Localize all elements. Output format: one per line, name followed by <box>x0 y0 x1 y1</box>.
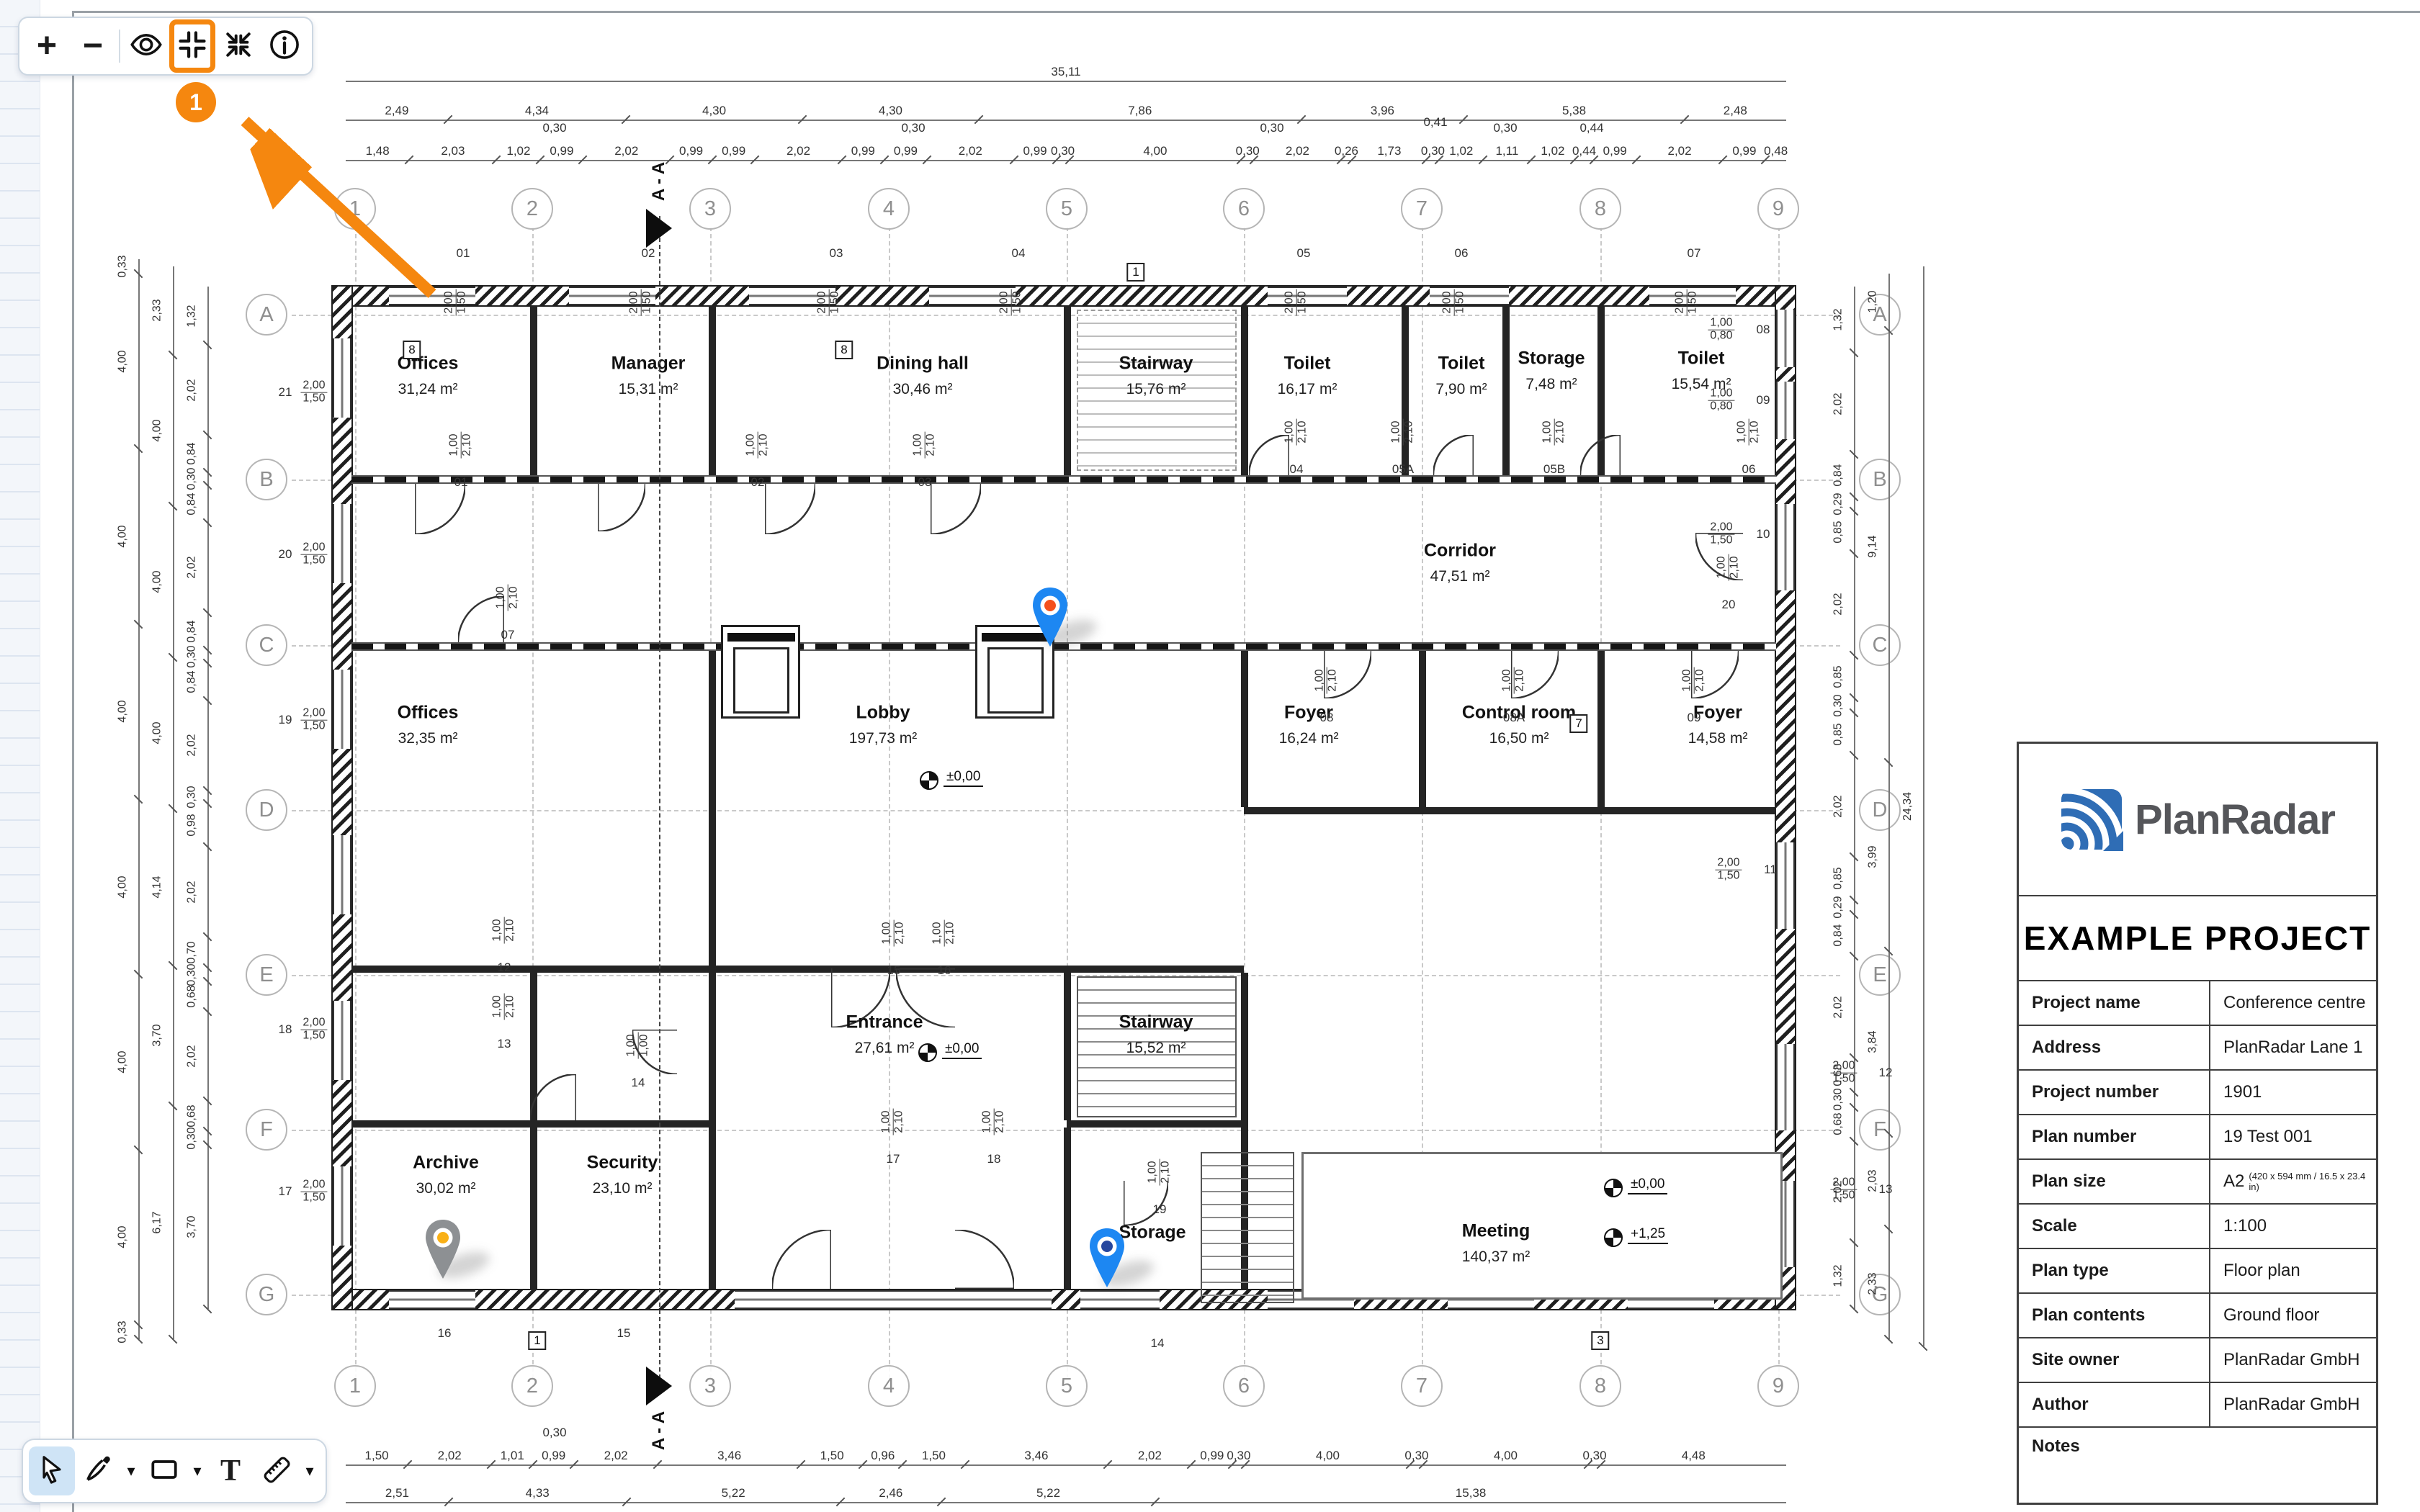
ref-label: 16 <box>438 1326 452 1341</box>
door-dimension: 1,002,10 <box>745 431 771 458</box>
dimension-segment: 4,00 <box>108 974 138 1149</box>
dimension-value: 4,00 <box>151 722 164 744</box>
dimension-segment: 2,02 <box>1824 554 1854 655</box>
annotation-toolbar: ▾▾T▾ <box>22 1439 327 1503</box>
door-arc <box>765 484 815 534</box>
title-block-label: Author <box>2019 1383 2210 1428</box>
room-area-label: 16,24 m² <box>1279 730 1339 747</box>
dimension-value: 4,30 <box>702 104 726 118</box>
door-dimension: 1,002,10 <box>932 919 957 946</box>
dimension-segment: 4,00 <box>108 624 138 799</box>
room-label: Manager <box>611 354 686 374</box>
window-dimension: 1,000,80 <box>1708 388 1734 413</box>
text-icon: T <box>220 1456 241 1486</box>
title-block-label: Site owner <box>2019 1338 2210 1383</box>
dimension-value: 2,02 <box>604 1449 628 1463</box>
door-dimension: 1,002,10 <box>1147 1158 1173 1185</box>
room-area-label: 140,37 m² <box>1462 1248 1531 1266</box>
dimension-value: 35,11 <box>1051 65 1080 79</box>
door-dimension: 1,002,10 <box>913 431 938 458</box>
window-ref-label: 06 <box>1455 246 1469 261</box>
dimension-segment: 1,02 <box>1531 141 1575 160</box>
dimension-segment: 2,02 <box>1636 141 1724 160</box>
detail-ref-box: 1 <box>528 1331 546 1350</box>
grid-bubble-row: G <box>246 1274 287 1315</box>
planradar-logo-text: PlanRadar <box>2135 796 2335 844</box>
window-dimension: 2,001,50 <box>1830 1177 1857 1202</box>
info-icon <box>268 28 301 65</box>
dimension-value: 4,00 <box>117 1050 130 1073</box>
title-block-value: PlanRadar GmbH <box>2210 1383 2376 1428</box>
dimension-segment: 0,68 <box>177 981 207 1012</box>
room-label: Entrance <box>846 1012 923 1033</box>
room-label: Toilet <box>1678 348 1725 369</box>
plan-info-button[interactable] <box>261 20 308 72</box>
wall <box>1402 305 1409 475</box>
window-dimension: 2,001,50 <box>817 289 842 315</box>
dimension-segment: 0,84 <box>177 613 207 650</box>
dimension-segment: 0,84 <box>1824 914 1854 957</box>
dimension-value: 0,84 <box>186 620 199 642</box>
dimension-segment: 4,30 <box>802 101 979 120</box>
dimension-segment: 0,84 <box>177 485 207 523</box>
dimension-segment: 3,84 <box>1858 951 1888 1133</box>
window-dimension: 2,001,50 <box>1675 289 1700 315</box>
room-area-label: 16,17 m² <box>1278 381 1337 398</box>
dimension-value: 0,84 <box>186 442 199 464</box>
room-area-label: 14,58 m² <box>1688 730 1748 747</box>
window-ref-label: 19 <box>279 713 292 727</box>
window-ref-label: 10 <box>1757 527 1770 541</box>
grid-bubble-col: 8 <box>1579 188 1621 230</box>
select-tool-button[interactable] <box>29 1446 75 1495</box>
room-label: Storage <box>1518 348 1585 369</box>
dimension-value: 4,00 <box>1316 1449 1340 1463</box>
dimension-segment: 3,46 <box>965 1446 1108 1464</box>
grid-axis-line <box>889 227 890 1379</box>
dimension-value: 2,02 <box>1832 795 1845 817</box>
door-arc <box>931 484 981 534</box>
dimension-segment: 4,00 <box>1070 141 1242 160</box>
door-arc <box>1433 435 1474 475</box>
room-area-label: 7,90 m² <box>1435 381 1487 398</box>
grid-bubble-col: 5 <box>1046 1365 1088 1407</box>
wall <box>1064 305 1071 475</box>
dimension-value: 3,96 <box>1371 104 1394 118</box>
title-block-value: A2(420 x 594 mm / 16.5 x 23.4 in) <box>2210 1160 2376 1205</box>
window-ref-label: 18 <box>279 1022 292 1037</box>
measure-tool-dropdown-caret[interactable]: ▾ <box>300 1462 320 1480</box>
draw-tool-button[interactable] <box>75 1446 121 1495</box>
dimension-value: 9,14 <box>1867 535 1880 557</box>
draw-tool-dropdown-caret[interactable]: ▾ <box>121 1462 141 1480</box>
wall <box>1241 305 1248 475</box>
dimension-column: 1,322,020,840,290,852,020,850,300,852,02… <box>1824 287 1855 1309</box>
shape-tool-button[interactable] <box>141 1446 187 1495</box>
dimension-segment: 0,26 <box>1341 141 1353 160</box>
dimension-segment: 15,38 <box>1155 1483 1786 1502</box>
dimension-segment: 1,50 <box>902 1446 964 1464</box>
door-dimension: 1,002,10 <box>982 1108 1007 1135</box>
dimension-segment: 2,02 <box>177 523 207 613</box>
window-dimension: 1,000,80 <box>1708 318 1734 343</box>
window-ref-label: 17 <box>279 1184 292 1199</box>
dimension-segment: 4,00 <box>1423 1446 1589 1464</box>
level-marker-value: ±0,00 <box>1628 1176 1667 1194</box>
dimension-value: 4,00 <box>1494 1449 1518 1463</box>
shrink-icon <box>222 28 255 65</box>
dimension-segment: 2,02 <box>1824 755 1854 857</box>
title-block-value: 1901 <box>2210 1071 2376 1115</box>
detail-ref-box: 3 <box>1591 1331 1609 1350</box>
dimension-value: 1,32 <box>1832 308 1845 330</box>
room-area-label: 16,50 m² <box>1489 730 1549 747</box>
dimension-column: 24,34 <box>1893 266 1924 1346</box>
window-dimension: 2,001,50 <box>1708 522 1734 547</box>
dimension-segment: 2,02 <box>1824 353 1854 454</box>
collapse-view-button[interactable] <box>215 20 261 72</box>
step-badge: 1 <box>176 82 216 122</box>
eye-icon <box>130 28 163 65</box>
window-ref-label: 09 <box>1757 393 1770 408</box>
dimension-segment: 4,00 <box>108 1150 138 1325</box>
dimension-segment: 2,51 <box>346 1483 449 1502</box>
level-marker-icon <box>1604 1228 1623 1247</box>
title-block-value: 1:100 <box>2210 1205 2376 1249</box>
dimension-value: 0,99 <box>1023 144 1047 158</box>
door-ref-label: 12 <box>498 960 511 975</box>
zoom-out-icon: − <box>83 29 103 63</box>
dimension-column: 0,334,004,004,004,004,004,000,33 <box>108 259 140 1339</box>
dimension-value: 24,34 <box>1901 792 1914 821</box>
door-ref-label: 16 <box>938 963 951 978</box>
window-dimension: 2,001,50 <box>300 1017 327 1043</box>
dimension-value: 0,84 <box>1832 464 1845 487</box>
dimension-segment: 4,00 <box>108 449 138 624</box>
dimension-value: 0,99 <box>542 1449 565 1463</box>
window <box>1776 1044 1795 1130</box>
dimension-value: 4,30 <box>879 104 902 118</box>
dimension-column: 1,209,143,993,842,032,33 <box>1858 274 1890 1339</box>
grid-bubble-row: F <box>246 1109 287 1151</box>
door-dimension: 1,002,10 <box>1682 667 1707 693</box>
dimension-value: 0,30 <box>1260 121 1283 135</box>
dimension-value: 0,85 <box>1832 867 1845 889</box>
dimension-segment: 0,30 <box>177 472 207 486</box>
dimension-segment: 0,98 <box>177 804 207 847</box>
wall <box>333 287 1795 305</box>
window <box>333 670 351 749</box>
dimension-segment: 5,38 <box>1464 101 1684 120</box>
dimension-segment: 2,02 <box>177 1012 207 1102</box>
dimension-segment: 0,99 <box>533 1446 574 1464</box>
dimension-value: 0,85 <box>1832 723 1845 745</box>
dimension-segment: 4,14 <box>143 809 173 966</box>
title-block-label: Plan number <box>2019 1115 2210 1160</box>
dimension-row: 1,502,021,010,992,023,461,500,961,503,46… <box>346 1446 1786 1466</box>
dimension-segment: 0,68 <box>1824 1107 1854 1141</box>
window <box>1776 842 1795 929</box>
door-ref-label: 07 <box>501 628 515 642</box>
dimension-segment: 1,01 <box>491 1446 533 1464</box>
text-tool-button[interactable]: T <box>207 1446 254 1495</box>
dimension-value: 2,02 <box>1832 996 1845 1018</box>
room-area-label: 32,35 m² <box>398 730 458 747</box>
dimension-value: 1,73 <box>1377 144 1401 158</box>
dimension-value: 2,48 <box>1724 104 1747 118</box>
step-badge-number: 1 <box>189 89 202 116</box>
notes-label: Notes <box>2019 1428 2376 1503</box>
window-ref-label: 20 <box>279 547 292 562</box>
wall <box>709 651 716 966</box>
dimension-value: 3,70 <box>186 1215 199 1238</box>
dimension-value: 0,85 <box>1832 521 1845 544</box>
dimension-value: 2,02 <box>959 144 982 158</box>
door-ref-label: 14 <box>632 1076 645 1090</box>
section-marker-icon <box>646 209 672 248</box>
dimension-segment: 0,30 <box>1410 1446 1422 1464</box>
zoom-in-button[interactable]: + <box>24 20 70 72</box>
grid-bubble-col: 9 <box>1757 1365 1799 1407</box>
wall <box>1419 651 1426 807</box>
grid-bubble-col: 5 <box>1046 188 1088 230</box>
dimension-segment: 4,00 <box>108 799 138 974</box>
grid-bubble-row: E <box>246 954 287 996</box>
measure-tool-button[interactable] <box>254 1446 300 1495</box>
toggle-visibility-button[interactable] <box>123 20 169 72</box>
dimension-value: 3,70 <box>151 1025 164 1047</box>
dimension-value: 6,17 <box>151 1211 164 1233</box>
door-ref-label: 15 <box>887 963 901 978</box>
grid-bubble-col: 3 <box>689 188 731 230</box>
dimension-segment: 5,22 <box>941 1483 1155 1502</box>
dimension-segment: 9,14 <box>1858 330 1888 762</box>
dimension-value: 4,00 <box>117 701 130 723</box>
dimension-value: 1,32 <box>1832 1264 1845 1287</box>
dimension-value: 0,99 <box>851 144 875 158</box>
shape-tool-dropdown-caret[interactable]: ▾ <box>187 1462 207 1480</box>
dimension-segment: 3,46 <box>658 1446 801 1464</box>
dimension-segment: 0,29 <box>1824 497 1854 511</box>
stairs <box>1201 1152 1294 1303</box>
room-label: Lobby <box>856 703 910 724</box>
dimension-row: 35,11 <box>346 62 1786 82</box>
dimension-segment: 0,33 <box>108 1325 138 1339</box>
dimension-segment: 1,02 <box>1439 141 1483 160</box>
dimension-segment: 1,50 <box>801 1446 863 1464</box>
dimension-segment: 0,84 <box>177 663 207 701</box>
dimension-value: 0,68 <box>186 1105 199 1128</box>
ref-label: 15 <box>617 1326 631 1341</box>
window <box>389 1290 475 1309</box>
title-block-label: Project number <box>2019 1071 2210 1115</box>
dimension-value: 0,84 <box>186 670 199 693</box>
door-ref-label: 08 <box>1320 711 1334 725</box>
dimension-segment: 6,17 <box>143 1106 173 1339</box>
room-area-label: 47,51 m² <box>1430 568 1490 585</box>
dimension-value: 0,84 <box>186 493 199 516</box>
door-dimension: 1,002,10 <box>881 1108 906 1135</box>
level-marker-icon <box>920 771 938 790</box>
dimension-value: 0,99 <box>679 144 703 158</box>
room-label: Security <box>587 1153 658 1174</box>
dimension-segment: 0,30 <box>1588 1446 1600 1464</box>
dimension-value: 4,00 <box>117 876 130 898</box>
window-ref-label: 02 <box>642 246 655 261</box>
zoom-out-button[interactable]: − <box>70 20 116 72</box>
window-dimension: 2,001,50 <box>1830 1061 1857 1086</box>
planradar-logo: PlanRadar <box>2019 744 2376 896</box>
door-dimension: 1,002,10 <box>882 919 907 946</box>
dimension-segment: 2,02 <box>927 141 1014 160</box>
dimension-value: 3,46 <box>717 1449 741 1463</box>
dimension-segment: 4,00 <box>143 657 173 809</box>
dimension-segment: 7,86 <box>979 101 1301 120</box>
wall <box>1064 1128 1071 1290</box>
grid-bubble-col: 1 <box>334 1365 376 1407</box>
window-dimension: 2,001,50 <box>999 289 1024 315</box>
dimension-segment: 2,46 <box>841 1483 941 1502</box>
dimension-value: 0,41 <box>1423 115 1447 130</box>
wall <box>709 973 716 1290</box>
dimension-value: 1,02 <box>1541 144 1564 158</box>
dimension-value: 2,02 <box>1286 144 1309 158</box>
wall <box>530 973 537 1290</box>
dimension-value: 0,48 <box>1764 144 1788 158</box>
dimension-segment: 2,02 <box>1254 141 1341 160</box>
level-marker-value: ±0,00 <box>944 769 983 787</box>
dimension-segment: 0,99 <box>1723 141 1765 160</box>
dimension-value: 2,02 <box>186 557 199 579</box>
wall <box>351 966 1244 973</box>
dimension-value: 0,96 <box>871 1449 895 1463</box>
door-dimension: 1,002,10 <box>1716 554 1742 580</box>
dimension-segment: 0,30 <box>1057 141 1070 160</box>
door-dimension: 1,002,10 <box>1391 418 1416 445</box>
dimension-value: 1,01 <box>501 1449 524 1463</box>
dimension-value: 0,99 <box>1732 144 1756 158</box>
dimension-value: 2,03 <box>1867 1170 1880 1192</box>
dimension-value: 4,33 <box>526 1486 550 1500</box>
window-dimension: 2,001,50 <box>300 542 327 567</box>
dimension-segment: 0,99 <box>712 141 755 160</box>
elevator-symbol <box>721 625 800 719</box>
pen-icon <box>82 1454 114 1489</box>
dimension-value: 2,02 <box>1667 144 1691 158</box>
window-dimension: 2,001,50 <box>300 1179 327 1205</box>
title-block: PlanRadar EXAMPLE PROJECT Project nameCo… <box>2017 742 2378 1505</box>
detail-ref-box: 1 <box>1126 263 1144 282</box>
dimension-segment: 0,84 <box>1824 454 1854 497</box>
door-ref-label: 09 <box>1688 711 1701 725</box>
section-line <box>659 216 660 1386</box>
dimension-value: 2,51 <box>385 1486 409 1500</box>
door-ref-label: 06 <box>1742 462 1756 477</box>
door-ref-label: 18 <box>987 1152 1001 1166</box>
dimension-value: 1,02 <box>1449 144 1473 158</box>
section-label: A - A <box>649 1411 669 1450</box>
grid-bubble-col: 4 <box>868 188 910 230</box>
dimension-value: 4,00 <box>1143 144 1167 158</box>
door-arc <box>598 484 645 531</box>
dimension-segment: 3,70 <box>177 1145 207 1309</box>
dimension-segment: 4,30 <box>626 101 802 120</box>
dimension-value: 1,11 <box>1495 144 1518 158</box>
rect-icon <box>148 1454 180 1489</box>
dimension-column: 2,334,004,004,004,143,706,17 <box>143 266 174 1339</box>
highlight-frame <box>169 19 215 73</box>
dimension-segment: 1,73 <box>1352 141 1426 160</box>
dimension-segment: 0,85 <box>1824 511 1854 554</box>
title-block-label: Address <box>2019 1026 2210 1071</box>
window-ref-label: 08 <box>1757 323 1770 337</box>
dimension-segment: 2,02 <box>583 141 670 160</box>
dimension-segment: 0,30 <box>177 650 207 664</box>
dimension-value: 0,99 <box>1603 144 1627 158</box>
dimension-value: 5,22 <box>722 1486 745 1500</box>
title-block-table: Project nameConference centreAddressPlan… <box>2019 981 2376 1428</box>
dimension-value: 3,84 <box>1867 1031 1880 1053</box>
room-label: Stairway <box>1119 354 1193 374</box>
level-marker-icon <box>1604 1179 1623 1197</box>
issue-pin-blue-navy[interactable] <box>1088 1227 1126 1290</box>
grid-bubble-col: 2 <box>511 1365 553 1407</box>
dimension-segment: 0,30 <box>1241 141 1254 160</box>
room-area-label: 197,73 m² <box>849 730 918 747</box>
dimension-value: 0,70 <box>186 941 199 963</box>
dimension-row: 2,494,344,304,307,863,965,382,48 <box>346 101 1786 121</box>
door-dimension: 1,002,10 <box>1314 667 1340 693</box>
dimension-segment: 2,02 <box>408 1446 491 1464</box>
dimension-segment: 0,30 <box>1824 1092 1854 1107</box>
door-ref-label: 05B <box>1543 462 1565 477</box>
issue-pin-gray-amber[interactable] <box>424 1218 462 1282</box>
dimension-segment: 2,02 <box>1824 956 1854 1058</box>
door-ref-label: 19 <box>1153 1202 1167 1217</box>
dimension-value: 0,99 <box>550 144 573 158</box>
dimension-segment: 0,30 <box>177 791 207 804</box>
door-ref-label: 03 <box>918 475 932 490</box>
dimension-value: 0,33 <box>117 1320 130 1343</box>
window-dimension: 2,001,50 <box>1442 289 1467 315</box>
dimension-segment: 0,96 <box>863 1446 902 1464</box>
section-label: A - A <box>649 162 669 201</box>
dimension-value: 1,20 <box>1867 291 1880 313</box>
dimension-segment: 0,30 <box>1824 698 1854 713</box>
fit-to-screen-button[interactable] <box>169 20 215 72</box>
section-marker-icon <box>646 1367 672 1405</box>
dimension-segment: 2,02 <box>177 847 207 937</box>
dimension-value: 7,86 <box>1128 104 1152 118</box>
dimension-value: 4,48 <box>1682 1449 1706 1463</box>
issue-pin-blue-orange[interactable] <box>1031 586 1069 649</box>
room-label: Offices <box>398 703 459 724</box>
window <box>1080 1290 1160 1309</box>
dimension-segment: 24,34 <box>1893 266 1923 1346</box>
room-label: Stairway <box>1119 1012 1193 1033</box>
dimension-segment: 5,22 <box>627 1483 841 1502</box>
room-label: Storage <box>1119 1223 1186 1243</box>
door-ref-label: 02 <box>751 475 765 490</box>
door-ref-label: 17 <box>887 1152 900 1166</box>
dimension-value: 15,38 <box>1456 1486 1487 1500</box>
window <box>333 835 351 914</box>
dimension-segment: 3,70 <box>143 966 173 1106</box>
grid-bubble-col: 6 <box>1223 188 1265 230</box>
window-ref-label: 07 <box>1688 246 1701 261</box>
grid-bubble-col: 3 <box>689 1365 731 1407</box>
dimension-value: 0,84 <box>1832 924 1845 947</box>
